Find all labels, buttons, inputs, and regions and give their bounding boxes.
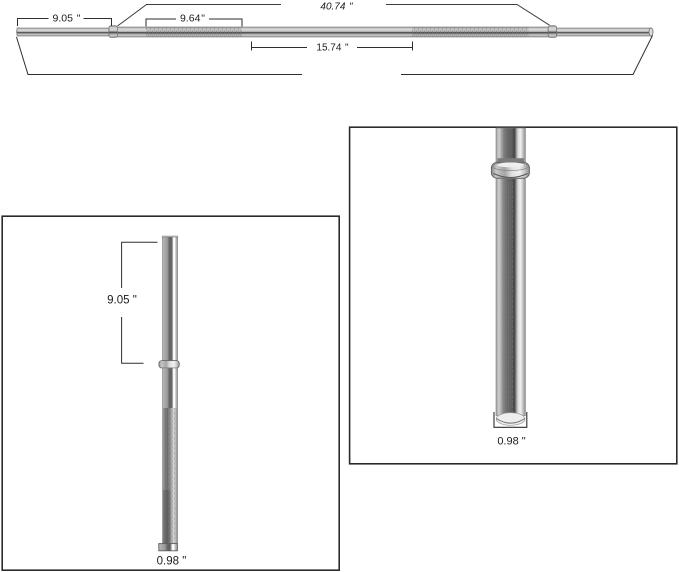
svg-text:9.05 ": 9.05 ": [107, 294, 137, 306]
svg-text:15.74 ": 15.74 ": [316, 43, 349, 54]
svg-text:0.98 ": 0.98 ": [157, 555, 187, 567]
svg-text:40.74 ": 40.74 ": [320, 2, 353, 13]
svg-text:0.98 ": 0.98 ": [497, 435, 525, 447]
svg-text:9.64 ": 9.64 ": [180, 12, 205, 24]
svg-text:9.05 ": 9.05 ": [53, 13, 81, 25]
